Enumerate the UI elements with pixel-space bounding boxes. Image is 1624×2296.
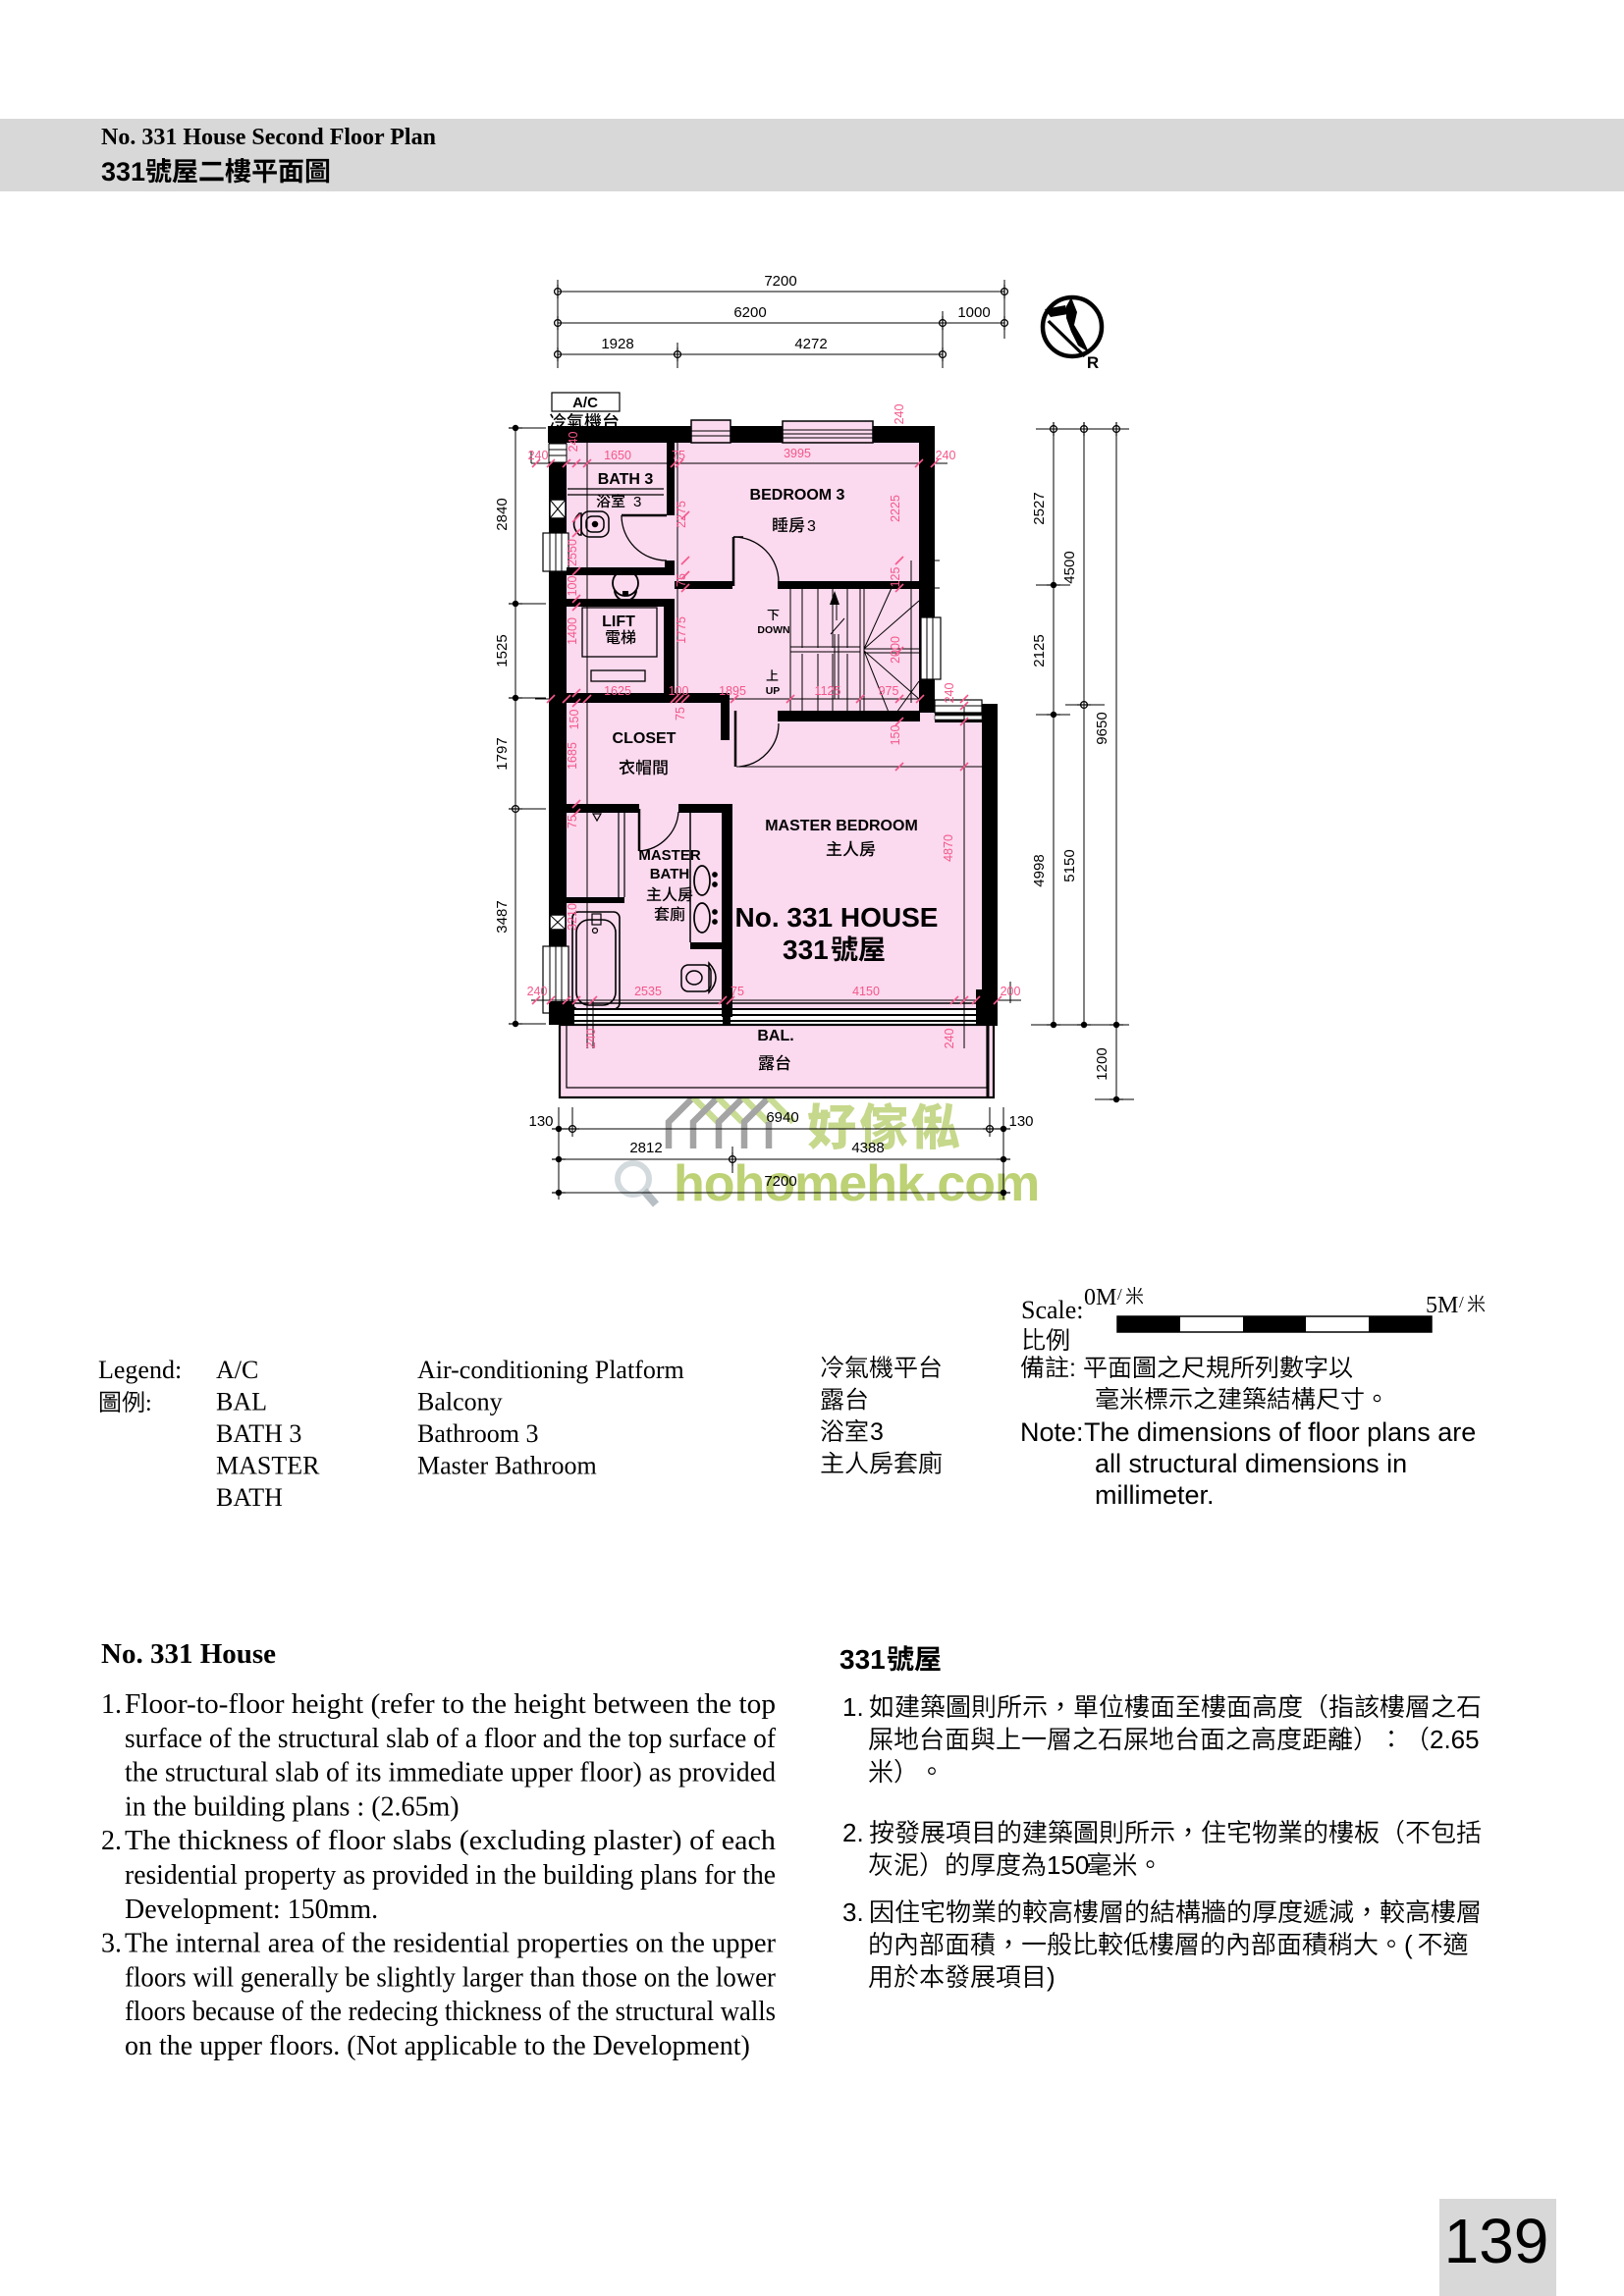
svg-text:3: 3 bbox=[807, 518, 816, 535]
svg-text:2000: 2000 bbox=[889, 636, 902, 664]
svg-text:1.: 1. bbox=[101, 1689, 122, 1720]
svg-text:(: ( bbox=[1404, 1930, 1413, 1959]
svg-text:150: 150 bbox=[889, 725, 902, 746]
svg-text:floors because of the redecing: floors because of the redecing thickness… bbox=[125, 1997, 776, 2027]
svg-text:240: 240 bbox=[528, 449, 549, 462]
svg-text:hohomehk.com: hohomehk.com bbox=[674, 1155, 1039, 1212]
svg-text:7200: 7200 bbox=[764, 273, 796, 290]
svg-text:R: R bbox=[1087, 353, 1099, 372]
svg-text:75: 75 bbox=[731, 985, 744, 998]
svg-text:100: 100 bbox=[669, 684, 689, 698]
svg-text:75: 75 bbox=[566, 815, 579, 828]
svg-text:No. 331 HOUSE: No. 331 HOUSE bbox=[735, 902, 939, 933]
svg-text:1.: 1. bbox=[842, 1692, 864, 1722]
svg-text::: : bbox=[1069, 1355, 1076, 1382]
svg-text:The thickness of floor sla: The thickness of floor slabs (excluding … bbox=[125, 1826, 776, 1856]
svg-text:1000: 1000 bbox=[957, 304, 990, 321]
svg-text:on the upper floors. (Not appl: on the upper floors. (Not applicable to … bbox=[125, 2031, 750, 2061]
svg-text:125: 125 bbox=[889, 567, 902, 588]
svg-text:3.: 3. bbox=[101, 1929, 122, 1959]
svg-text:DOWN: DOWN bbox=[757, 624, 789, 636]
svg-text:1685: 1685 bbox=[566, 742, 579, 770]
svg-text:3487: 3487 bbox=[494, 900, 511, 933]
svg-text:2.: 2. bbox=[842, 1818, 864, 1847]
svg-text:floors will generally be sligh: floors will generally be slightly larger… bbox=[125, 1962, 777, 1993]
svg-text:331: 331 bbox=[101, 157, 145, 187]
svg-text:The internal area of the: The internal area of the residential pro… bbox=[125, 1929, 777, 1959]
svg-text:BATH: BATH bbox=[216, 1483, 283, 1512]
svg-text:3: 3 bbox=[633, 494, 641, 510]
svg-text:Balcony: Balcony bbox=[417, 1388, 503, 1416]
svg-text:200: 200 bbox=[1001, 985, 1021, 998]
svg-text:millimeter.: millimeter. bbox=[1095, 1480, 1215, 1510]
svg-text:residential property as prov: residential property as provided in the … bbox=[125, 1860, 776, 1891]
svg-text:75: 75 bbox=[672, 449, 685, 462]
svg-text:all structural dimensions in: all structural dimensions in bbox=[1095, 1449, 1407, 1478]
svg-text:): ) bbox=[1047, 1962, 1056, 1992]
svg-text:CLOSET: CLOSET bbox=[613, 730, 677, 747]
svg-text:3.: 3. bbox=[842, 1897, 864, 1927]
svg-text:4272: 4272 bbox=[794, 336, 827, 352]
svg-text:BATH: BATH bbox=[650, 866, 690, 882]
svg-text:2527: 2527 bbox=[1031, 492, 1048, 524]
svg-text:5150: 5150 bbox=[1061, 849, 1078, 881]
svg-text:BATH 3: BATH 3 bbox=[216, 1419, 301, 1448]
svg-text:7200: 7200 bbox=[764, 1173, 796, 1190]
svg-text:1650: 1650 bbox=[604, 449, 631, 462]
svg-text:Note:: Note: bbox=[1020, 1417, 1084, 1447]
svg-text:9650: 9650 bbox=[1094, 712, 1110, 744]
svg-text:MASTER: MASTER bbox=[216, 1452, 320, 1480]
svg-text:2550: 2550 bbox=[566, 539, 579, 566]
svg-text:130: 130 bbox=[1008, 1113, 1033, 1130]
svg-text:240: 240 bbox=[584, 1029, 598, 1049]
svg-text:240: 240 bbox=[527, 985, 548, 998]
svg-text:100: 100 bbox=[566, 576, 579, 597]
svg-text:1797: 1797 bbox=[494, 737, 511, 770]
svg-text:975: 975 bbox=[879, 684, 899, 698]
svg-text:150: 150 bbox=[1047, 1850, 1089, 1880]
svg-text:2840: 2840 bbox=[494, 498, 511, 530]
svg-text:/: / bbox=[1117, 1285, 1122, 1304]
svg-text:240: 240 bbox=[893, 404, 906, 425]
svg-text:1125: 1125 bbox=[815, 684, 841, 698]
svg-text:BEDROOM 3: BEDROOM 3 bbox=[750, 487, 845, 504]
svg-text:240: 240 bbox=[936, 449, 956, 462]
svg-text:Air-conditioning Platform: Air-conditioning Platform bbox=[417, 1356, 684, 1384]
svg-text:1525: 1525 bbox=[494, 634, 511, 667]
svg-text:0M: 0M bbox=[1084, 1285, 1116, 1310]
svg-text:75: 75 bbox=[675, 573, 688, 587]
svg-text:5M: 5M bbox=[1426, 1293, 1458, 1318]
svg-text:surface of the structural slab: surface of the structural slab of a floo… bbox=[125, 1724, 777, 1754]
svg-text:240: 240 bbox=[943, 683, 956, 704]
svg-text:No. 331 House Second Floor Pla: No. 331 House Second Floor Plan bbox=[101, 125, 436, 150]
svg-text:2225: 2225 bbox=[889, 495, 902, 522]
svg-text:1625: 1625 bbox=[604, 684, 631, 698]
svg-text:150: 150 bbox=[568, 710, 581, 730]
svg-text:No. 331 House: No. 331 House bbox=[101, 1638, 276, 1670]
svg-text:6940: 6940 bbox=[766, 1109, 798, 1126]
svg-text:1895: 1895 bbox=[719, 684, 746, 698]
svg-text:4870: 4870 bbox=[942, 834, 955, 862]
svg-text:331: 331 bbox=[839, 1644, 886, 1675]
svg-text:in the building plans : (2.65m: in the building plans : (2.65m) bbox=[125, 1791, 460, 1822]
svg-text:Master Bathroom: Master Bathroom bbox=[417, 1452, 597, 1480]
svg-text:MASTER: MASTER bbox=[638, 847, 701, 864]
svg-text:BAL.: BAL. bbox=[757, 1028, 793, 1044]
svg-text:3210: 3210 bbox=[566, 903, 579, 931]
svg-text:Legend:: Legend: bbox=[98, 1356, 182, 1384]
svg-text:A/C: A/C bbox=[216, 1356, 258, 1384]
svg-text:2.65: 2.65 bbox=[1430, 1725, 1480, 1754]
svg-text:UP: UP bbox=[766, 685, 781, 697]
svg-text:4150: 4150 bbox=[852, 985, 880, 998]
svg-text:4998: 4998 bbox=[1031, 854, 1048, 886]
svg-text:331: 331 bbox=[783, 934, 829, 965]
svg-text:LIFT: LIFT bbox=[602, 614, 635, 630]
svg-text:2275: 2275 bbox=[675, 501, 688, 528]
svg-text:240: 240 bbox=[943, 1029, 956, 1049]
svg-text:2125: 2125 bbox=[1031, 634, 1048, 667]
svg-text:The dimensions of floor plans: The dimensions of floor plans are bbox=[1084, 1417, 1476, 1447]
svg-text:BATH 3: BATH 3 bbox=[598, 471, 654, 488]
svg-text:the structural slab of its imm: the structural slab of its immediate upp… bbox=[125, 1758, 776, 1789]
svg-text::: : bbox=[145, 1391, 152, 1416]
svg-text:6200: 6200 bbox=[733, 304, 766, 321]
svg-text:1200: 1200 bbox=[1094, 1047, 1110, 1080]
svg-text:139: 139 bbox=[1444, 2206, 1549, 2276]
svg-text:1775: 1775 bbox=[675, 616, 688, 644]
svg-text:1400: 1400 bbox=[566, 617, 579, 645]
svg-text:Development: 150mm.: Development: 150mm. bbox=[125, 1895, 378, 1925]
svg-text:Bathroom 3: Bathroom 3 bbox=[417, 1419, 539, 1448]
svg-text:3: 3 bbox=[870, 1418, 884, 1446]
svg-text:/: / bbox=[1459, 1293, 1464, 1311]
svg-text:240: 240 bbox=[567, 432, 580, 453]
svg-text:2812: 2812 bbox=[629, 1140, 662, 1156]
svg-text:BAL: BAL bbox=[216, 1388, 267, 1416]
svg-text:Scale:: Scale: bbox=[1021, 1296, 1084, 1324]
svg-text:4388: 4388 bbox=[851, 1140, 884, 1156]
svg-text:MASTER BEDROOM: MASTER BEDROOM bbox=[765, 818, 918, 834]
svg-text:1928: 1928 bbox=[601, 336, 633, 352]
svg-text:4500: 4500 bbox=[1061, 551, 1078, 583]
svg-text:3995: 3995 bbox=[784, 447, 811, 460]
svg-text:130: 130 bbox=[528, 1113, 553, 1130]
svg-text:75: 75 bbox=[674, 707, 687, 721]
svg-text:Floor-to-floor height (refer: Floor-to-floor height (refer to the heig… bbox=[125, 1689, 776, 1720]
svg-text:2.: 2. bbox=[101, 1826, 122, 1856]
svg-text:A/C: A/C bbox=[572, 395, 598, 411]
svg-text:2535: 2535 bbox=[634, 985, 662, 998]
